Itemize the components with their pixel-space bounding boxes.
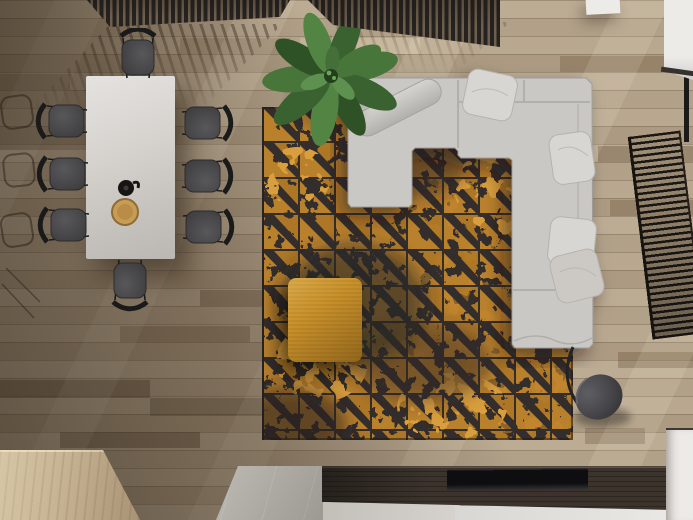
pillow — [548, 130, 597, 185]
tabletop-items — [112, 180, 138, 225]
floor-lamp — [555, 335, 647, 435]
pillow — [461, 67, 519, 122]
dining-chair — [183, 210, 232, 244]
dining-chair — [182, 106, 231, 140]
dining-chair — [113, 260, 147, 309]
blinds-frame-bar — [684, 74, 689, 142]
dining-chair — [38, 104, 87, 138]
dining-chairs — [38, 29, 232, 309]
dining-chair — [39, 157, 88, 191]
dining-chair — [182, 159, 231, 193]
white-cabinet-bottom-right — [666, 428, 693, 520]
dining-set — [30, 28, 250, 312]
tv-panel — [447, 468, 588, 490]
plant-center — [324, 69, 338, 83]
white-box — [586, 0, 621, 15]
dining-chair — [40, 208, 89, 242]
living-room-render — [0, 0, 693, 520]
dining-chair — [121, 29, 155, 78]
